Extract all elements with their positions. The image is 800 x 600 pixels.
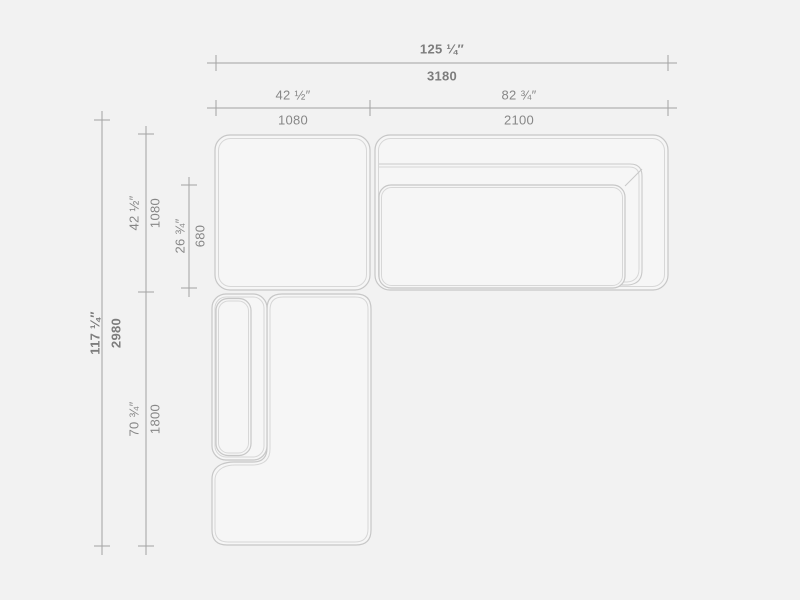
corner-module-outline — [215, 135, 370, 290]
chaise-back-cushion — [216, 299, 251, 456]
dim-left-section-width-inches: 42 ½″ — [275, 89, 310, 102]
dim-left-section-depth-mm: 1080 — [149, 198, 162, 228]
sofa-dimension-diagram: 125 ¼″ 3180 42 ½″ 1080 82 ¾″ 2100 117 ¼″… — [0, 0, 800, 600]
dim-chaise-section-depth-inches: 70 ¾″ — [128, 401, 141, 436]
corner-module — [215, 135, 370, 290]
dim-overall-width-inches: 125 ¼″ — [420, 43, 464, 56]
dim-right-section-width-mm: 2100 — [504, 114, 534, 127]
right-sofa-module — [375, 135, 668, 290]
dim-right-section-width-inches: 82 ¾″ — [501, 89, 536, 102]
dim-seat-depth-mm: 680 — [194, 225, 207, 248]
dim-chaise-section-depth-mm: 1800 — [149, 404, 162, 434]
dim-overall-depth-mm: 2980 — [110, 318, 123, 348]
dim-overall-width-mm: 3180 — [427, 70, 457, 83]
chaise-module — [212, 294, 371, 545]
dim-left-section-depth-inches: 42 ½″ — [128, 195, 141, 230]
dim-seat-depth-inches: 26 ¾″ — [174, 218, 187, 253]
right-sofa-seat-cushion — [379, 185, 625, 288]
dim-left-section-width-mm: 1080 — [278, 114, 308, 127]
dimension-lines — [94, 55, 677, 555]
dim-overall-depth-inches: 117 ¼″ — [89, 311, 102, 354]
sofa-plan-drawing — [0, 0, 800, 600]
